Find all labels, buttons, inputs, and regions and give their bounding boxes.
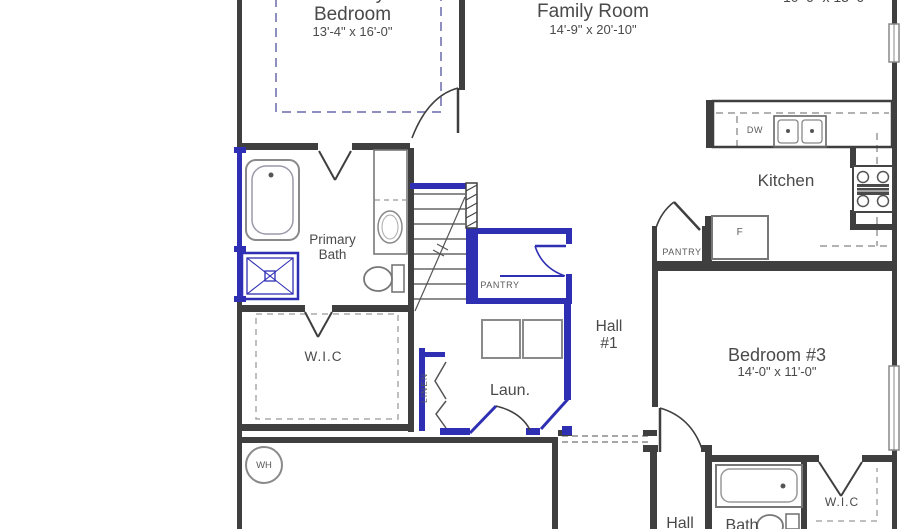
bath-toilet xyxy=(364,265,404,292)
primary-bedroom-dims: 13'-4" x 16'-0" xyxy=(255,25,450,39)
wall-blue-pantry-bottom xyxy=(472,298,572,304)
wall-blue-pantry-right-b xyxy=(566,274,572,304)
pantry-kitchen-label: PANTRY xyxy=(654,248,710,258)
washer-box xyxy=(482,320,520,358)
wall-blue-linen-top xyxy=(419,352,445,357)
bath2-label: Bath xyxy=(712,517,772,529)
top-right-room-dims: 10'-6" x 13'-6" xyxy=(756,0,896,5)
primary-bathtub xyxy=(246,160,299,240)
wall-jamb-b xyxy=(643,430,657,436)
wall-counter-left xyxy=(706,100,712,148)
bedroom3-door xyxy=(660,408,702,452)
wall-blue-pantry-top xyxy=(472,228,572,234)
primary-bath-double-door xyxy=(319,151,351,180)
primary-bedroom-name-line2: Bedroom xyxy=(255,5,450,26)
hall-1-line1: Hall xyxy=(579,319,639,336)
wall-range-bottom xyxy=(850,224,893,230)
wall-blue-pantry-right-a xyxy=(566,228,572,244)
wall-blue-stairs-top xyxy=(410,183,468,189)
wall-wic2-top-b xyxy=(862,455,897,462)
wic-right-double-door xyxy=(819,462,862,496)
wall-blue-laundry-jamb xyxy=(562,426,572,435)
range xyxy=(853,166,893,212)
primary-bath-line2: Bath xyxy=(290,248,375,263)
wic-left-shelf-dashes xyxy=(256,314,398,419)
hall-lower-label: Hall xyxy=(650,515,710,529)
wall-blue-laundry-bottom-b xyxy=(526,428,540,435)
bedroom3-label: Bedroom #3 14'-0" x 11'-0" xyxy=(692,346,862,379)
wall-hall-top-a xyxy=(643,445,658,452)
wall-blue-stairs-right xyxy=(466,228,473,304)
wall-bath2-top xyxy=(712,455,807,462)
hall-cased-opening-dashes xyxy=(562,436,648,442)
laundry-bottom-door xyxy=(470,406,530,433)
dryer-box xyxy=(523,320,562,358)
wall-blue-laundry-right xyxy=(564,304,571,400)
pantry-stairs-label: PANTRY xyxy=(472,281,528,291)
walls-black xyxy=(237,0,897,529)
floor-plan-linework xyxy=(0,0,900,529)
dishwasher-label: DW xyxy=(740,126,770,136)
pantry-stairs-door xyxy=(535,246,566,276)
wall-kitchen-bottom xyxy=(652,261,897,271)
wall-range-stub-top xyxy=(850,147,856,168)
wall-wic-bottom xyxy=(237,424,414,431)
wall-wic-top-b xyxy=(332,305,414,312)
family-room-dims: 14'-9" x 20'-10" xyxy=(498,23,688,37)
wic-left-label: W.I.C xyxy=(281,350,366,365)
bedroom3-name: Bedroom #3 xyxy=(692,346,862,365)
wall-pantry-kitchen-left xyxy=(652,226,657,264)
wall-wic2-top-a xyxy=(807,455,819,462)
wall-bath-stairs xyxy=(408,148,414,432)
wic-left-door xyxy=(305,312,332,337)
wall-bedroom3-left xyxy=(652,271,658,407)
laundry-right-door xyxy=(541,399,568,429)
kitchen-label: Kitchen xyxy=(731,172,841,190)
wall-garage-right xyxy=(552,437,558,529)
wall-fridge-left xyxy=(705,216,712,266)
bath-vanity xyxy=(374,150,407,254)
stair-treads xyxy=(414,194,466,299)
wall-wic-top-a xyxy=(237,305,305,312)
wall-bedroom-bottom-a xyxy=(237,143,318,150)
hall-1-label: Hall #1 xyxy=(579,319,639,352)
wall-bedroom-bottom-b xyxy=(352,143,410,150)
wall-garage-top xyxy=(237,437,558,443)
wall-blue-pantry-left xyxy=(472,228,478,304)
primary-bedroom-label: Primary Bedroom 13'-4" x 16'-0" xyxy=(255,0,450,39)
bath2-tub xyxy=(716,465,802,507)
family-room-name: Family Room xyxy=(498,2,688,23)
family-room-label: Family Room 14'-9" x 20'-10" xyxy=(498,2,688,37)
refrigerator-label: F xyxy=(726,228,754,239)
wall-blue-laundry-bottom-a xyxy=(440,428,470,435)
bedroom3-dims: 14'-0" x 11'-0" xyxy=(692,365,862,379)
floor-plan: Primary Bedroom 13'-4" x 16'-0" Family R… xyxy=(0,0,900,529)
laundry-label: Laun. xyxy=(475,382,545,399)
primary-bath-line1: Primary xyxy=(290,233,375,248)
primary-bath-label: Primary Bath xyxy=(290,233,375,262)
linen-label: LINEN xyxy=(420,366,432,410)
hall-1-line2: #1 xyxy=(579,336,639,353)
kitchen-sink xyxy=(774,116,826,147)
water-heater-label: WH xyxy=(256,460,272,471)
wall-bedroom-right xyxy=(459,0,465,90)
water-heater: WH xyxy=(245,446,283,484)
wic-right-label: W.I.C xyxy=(812,496,872,509)
linen-bifold-door xyxy=(435,362,446,428)
pantry-kitchen-door xyxy=(656,202,700,230)
